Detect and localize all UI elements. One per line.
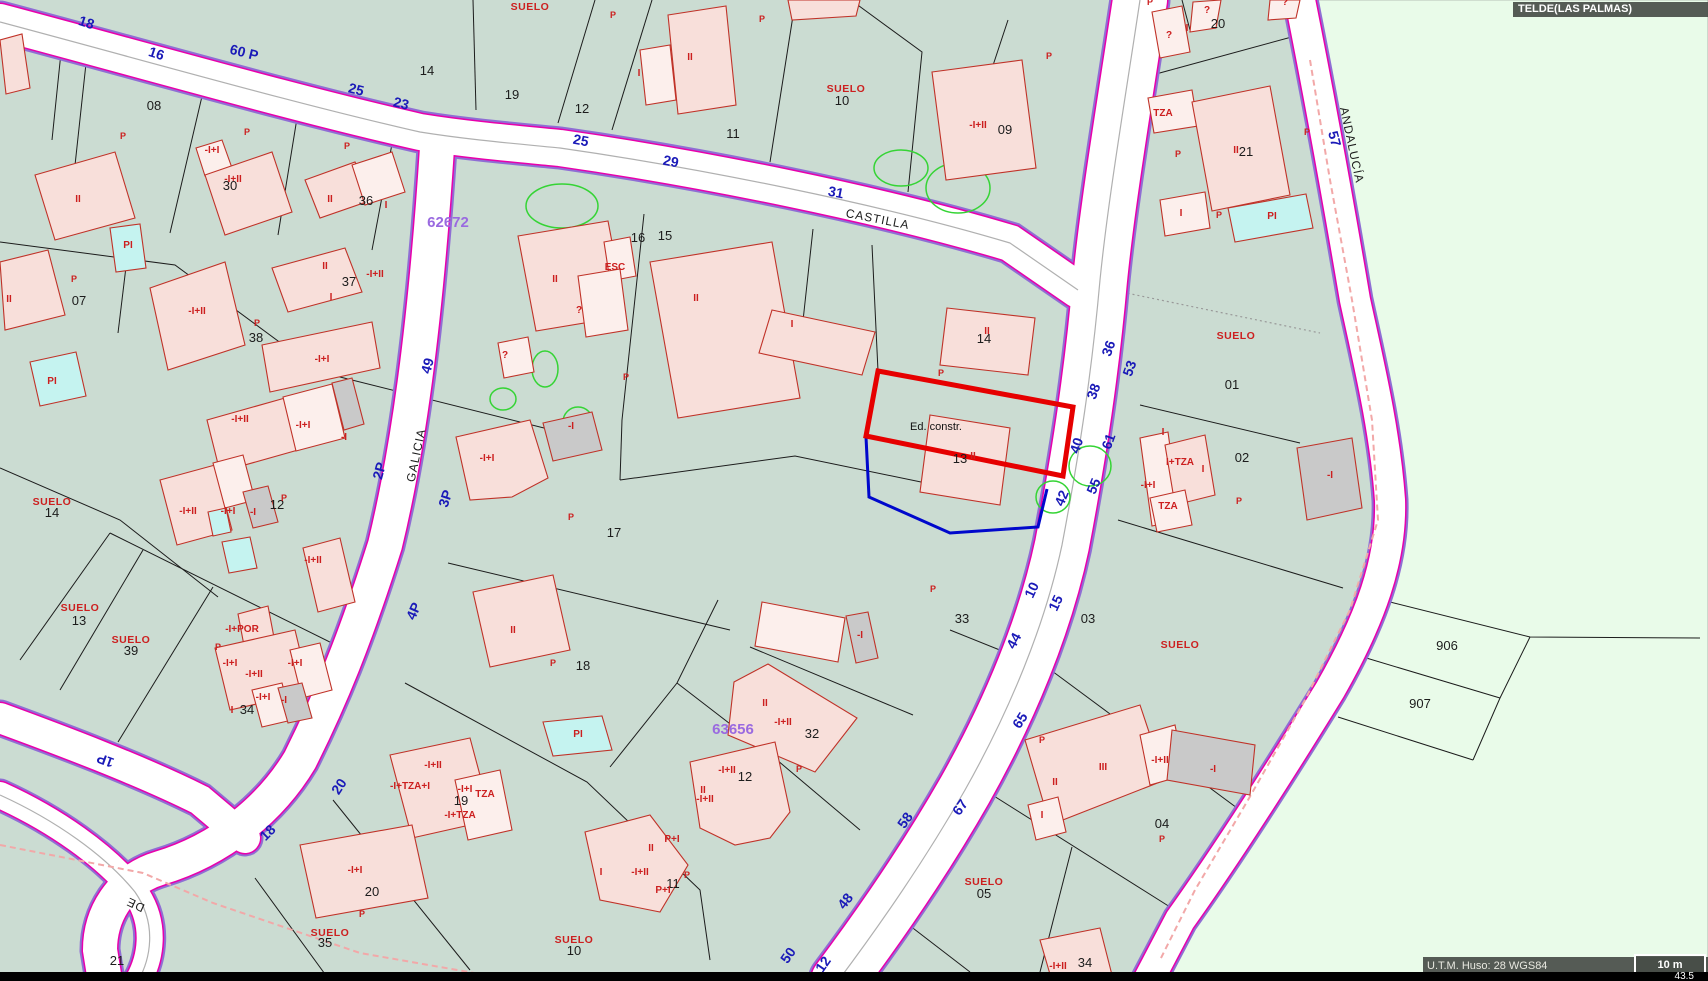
building-use-label: I — [385, 200, 388, 211]
patio-mark-label: P — [1304, 127, 1310, 137]
building-use-label: -I+II — [969, 120, 987, 131]
building-use-label: I — [1180, 208, 1183, 219]
building-use-label: -I — [281, 695, 287, 706]
suelo-label: SUELO — [311, 927, 350, 939]
building-use-label: -I+I — [256, 692, 271, 703]
parcel-number-label: 01 — [1225, 377, 1239, 392]
building-use-label: -I+II — [1151, 755, 1169, 766]
building-use-label: -I — [341, 432, 347, 443]
building-use-label: I — [330, 292, 333, 303]
building-use-label: -I — [250, 507, 256, 518]
parcel-number-label: 34 — [240, 702, 254, 717]
building-use-label: PI — [1267, 211, 1277, 222]
coordinate-readout: 43.5 — [1675, 972, 1694, 981]
building-use-label: -I+POR — [225, 624, 259, 635]
patio-mark-label: P — [1039, 735, 1045, 745]
parcel-number-label: 05 — [977, 886, 991, 901]
patio-mark-label: P — [281, 493, 287, 503]
building-use-label: -I+TZA — [444, 810, 475, 821]
suelo-label: SUELO — [965, 876, 1004, 888]
parcel-number-label: 20 — [1211, 16, 1225, 31]
selected-parcel-caption: Ed. constr. — [910, 421, 962, 433]
patio-mark-label: P — [344, 141, 350, 151]
patio-mark-label: P — [1159, 834, 1165, 844]
parcel-number-label: 03 — [1081, 611, 1095, 626]
building-use-label: II — [1052, 777, 1058, 788]
pool-footprint[interactable] — [30, 352, 86, 406]
building-use-label: P+I — [664, 834, 680, 845]
building-use-label: II — [648, 843, 654, 854]
building-use-label: I+TZA — [1166, 457, 1194, 468]
patio-mark-label: P — [1216, 210, 1222, 220]
map-sheet-ref-label: 63656 — [712, 721, 754, 738]
building-use-label: -I+II — [718, 765, 736, 776]
parcel-number-label: 38 — [249, 330, 263, 345]
suelo-label: SUELO — [33, 496, 72, 508]
patio-mark-label: P — [684, 870, 690, 880]
building-use-label: TZA — [1158, 501, 1177, 512]
parcel-number-label: 14 — [420, 63, 434, 78]
suelo-label: SUELO — [1161, 639, 1200, 651]
building-use-label: I — [231, 705, 234, 716]
parcel-number-label: 36 — [359, 193, 373, 208]
patio-mark-label: P — [796, 764, 802, 774]
patio-mark-label: P — [71, 274, 77, 284]
parcel-number-label: 02 — [1235, 450, 1249, 465]
building-footprint[interactable] — [578, 269, 628, 337]
building-use-label: -I+I — [288, 658, 303, 669]
building-use-label: -I+I — [296, 420, 311, 431]
building-use-label: II — [1233, 145, 1239, 156]
building-use-label: -I+II — [179, 506, 197, 517]
building-use-label: PI — [47, 376, 57, 387]
parcel-number-label: 15 — [658, 228, 672, 243]
building-use-label: II — [762, 698, 768, 709]
building-use-label: I — [1202, 464, 1205, 475]
parcel-number-label: 04 — [1155, 816, 1169, 831]
parcel-number-label: 19 — [454, 793, 468, 808]
building-use-label: -I+I — [315, 354, 330, 365]
catastro-map-viewer: CASTILLAGALICIAANDALUCÍADE181660 P252325… — [0, 0, 1708, 981]
building-use-label: II — [75, 194, 81, 205]
building-use-label: TZA — [1153, 108, 1172, 119]
patio-mark-label: P — [568, 512, 574, 522]
patio-mark-label: P — [1147, 0, 1153, 7]
building-use-label: II — [6, 294, 12, 305]
parcel-number-label: 21 — [110, 953, 124, 968]
building-use-label: -I+II — [696, 794, 714, 805]
building-use-label: II — [970, 451, 976, 462]
building-footprint[interactable] — [668, 6, 736, 114]
building-use-label: I — [1162, 427, 1165, 438]
parcel-number-label: 33 — [955, 611, 969, 626]
parcel-number-label: 12 — [738, 769, 752, 784]
building-use-label: I — [1186, 23, 1189, 34]
parcel-number-label: 18 — [576, 658, 590, 673]
suelo-label: SUELO — [112, 634, 151, 646]
parcel-number-label: 34 — [1078, 955, 1092, 970]
building-footprint[interactable] — [473, 575, 570, 667]
patio-mark-label: P — [120, 131, 126, 141]
building-use-label: -I+II — [245, 669, 263, 680]
building-use-label: -I+I — [480, 453, 495, 464]
building-use-label: -I+I — [223, 658, 238, 669]
parcel-number-label: 10 — [835, 93, 849, 108]
parcel-number-label: 13 — [72, 613, 86, 628]
suelo-label: SUELO — [61, 602, 100, 614]
patio-mark-label: P — [1236, 496, 1242, 506]
building-use-label: -I+II — [424, 760, 442, 771]
building-use-label: ESC — [605, 262, 626, 273]
building-use-label: I — [600, 867, 603, 878]
patio-mark-label: P — [215, 642, 221, 652]
building-use-label: II — [327, 194, 333, 205]
map-sheet-ref-label: 62672 — [427, 214, 469, 231]
building-use-label: I — [791, 319, 794, 330]
patio-mark-label: P — [254, 318, 260, 328]
building-use-label: II — [552, 274, 558, 285]
patio-mark-label: P — [1175, 149, 1181, 159]
parcel-number-label: 19 — [505, 87, 519, 102]
suelo-label: SUELO — [555, 934, 594, 946]
building-use-label: -I — [857, 630, 863, 641]
street-number-label: 31 — [827, 183, 846, 202]
building-use-label: -I+II — [231, 414, 249, 425]
building-use-label: I — [1041, 810, 1044, 821]
building-use-label: -I+II — [188, 306, 206, 317]
building-use-label: -I+II — [304, 555, 322, 566]
building-use-label: ? — [576, 305, 582, 316]
building-use-label: I — [638, 68, 641, 79]
building-use-label: -I+I — [221, 506, 236, 517]
building-use-label: -I — [1327, 470, 1333, 481]
building-footprint[interactable] — [1160, 192, 1210, 236]
building-use-label: ? — [1166, 30, 1172, 41]
parcel-number-label: 11 — [726, 126, 740, 141]
building-use-label: II — [984, 326, 990, 337]
building-use-label: II — [693, 293, 699, 304]
parcel-number-label: 17 — [607, 525, 621, 540]
patio-mark-label: P — [930, 584, 936, 594]
parcel-number-label: 20 — [365, 884, 379, 899]
patio-mark-label: P — [610, 10, 616, 20]
building-use-label: -I+I — [1141, 480, 1156, 491]
building-use-label: -I+I — [348, 865, 363, 876]
building-use-label: ? — [1204, 5, 1210, 16]
suelo-label: SUELO — [1217, 330, 1256, 342]
building-use-label: ? — [1282, 0, 1288, 8]
parcel-number-label: 21 — [1239, 144, 1253, 159]
suelo-label: SUELO — [511, 1, 550, 13]
parcel-number-label: 907 — [1409, 696, 1431, 711]
building-use-label: TZA — [475, 789, 494, 800]
building-use-label: -I+II — [224, 174, 242, 185]
building-use-label: -I — [568, 421, 574, 432]
parcel-number-label: 07 — [72, 293, 86, 308]
building-use-label: -I+II — [774, 717, 792, 728]
building-use-label: -I+TZA+I — [390, 781, 430, 792]
parcel-number-label: 13 — [953, 451, 967, 466]
building-use-label: -I+II — [366, 269, 384, 280]
street-number-label: 29 — [662, 152, 681, 171]
patio-mark-label: P — [938, 368, 944, 378]
pool-footprint[interactable] — [222, 537, 257, 573]
building-use-label: PI — [123, 240, 133, 251]
patio-mark-label: P — [244, 127, 250, 137]
street-number-label: 25 — [572, 131, 591, 150]
building-use-label: II — [510, 625, 516, 636]
parcel-number-label: 32 — [805, 726, 819, 741]
patio-mark-label: P — [623, 372, 629, 382]
building-use-label: II — [687, 52, 693, 63]
building-use-label: III — [1099, 762, 1108, 773]
parcel-number-label: 12 — [575, 101, 589, 116]
parcel-number-label: 37 — [342, 274, 356, 289]
patio-mark-label: P — [550, 658, 556, 668]
cadastral-map[interactable]: CASTILLAGALICIAANDALUCÍADE181660 P252325… — [0, 0, 1708, 981]
parcel-number-label: 16 — [631, 230, 645, 245]
parcel-number-label: 906 — [1436, 638, 1458, 653]
patio-mark-label: P — [1046, 51, 1052, 61]
building-use-label: -I — [1210, 764, 1216, 775]
patio-mark-label: P — [359, 909, 365, 919]
status-bar: 43.5 — [0, 972, 1708, 981]
building-use-label: -I+II — [1049, 961, 1067, 972]
parcel-number-label: 08 — [147, 98, 161, 113]
building-use-label: PI — [573, 729, 583, 740]
municipality-label: TELDE(LAS PALMAS) — [1513, 2, 1708, 17]
building-use-label: -I+I — [205, 145, 220, 156]
building-use-label: ? — [502, 350, 508, 361]
building-use-label: P+I — [655, 885, 671, 896]
suelo-label: SUELO — [827, 83, 866, 95]
building-use-label: II — [322, 261, 328, 272]
patio-mark-label: P — [759, 14, 765, 24]
building-use-label: -I+II — [631, 867, 649, 878]
building-footprint[interactable] — [640, 45, 676, 105]
building-use-label: -I+I — [458, 784, 473, 795]
parcel-number-label: 09 — [998, 122, 1012, 137]
